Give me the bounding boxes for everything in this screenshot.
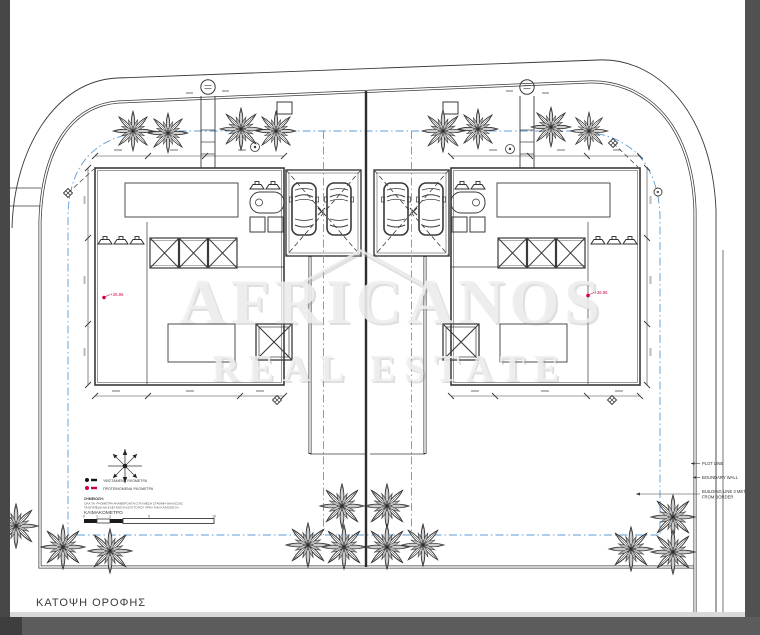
palm-tree bbox=[220, 108, 262, 150]
legend-marker-proposed bbox=[85, 486, 89, 490]
palm-tree bbox=[148, 113, 188, 153]
building-line-label-2: FROM BORDER bbox=[702, 494, 733, 499]
scalebar-tick-0: 0 bbox=[83, 515, 85, 519]
scalebar-title: ΚΛΙΜΑΚΟΜΕΤΡΟ bbox=[84, 510, 123, 516]
palm-tree bbox=[365, 525, 409, 569]
elevation-dot-left bbox=[102, 296, 106, 300]
palm-tree bbox=[286, 523, 330, 567]
legend-note-line2: ΤΑ ΕΠΙΠΕΔΑ ΝΑ ΕΛΕΓΧΘΟΥΝ ΕΠΙ ΤΟΠΟΥ ΠΡΙΝ Τ… bbox=[84, 505, 178, 509]
scalebar-tick-3: 5 bbox=[148, 515, 150, 519]
palm-tree bbox=[570, 112, 607, 149]
elevation-label-left: +26.95 bbox=[111, 292, 125, 297]
palm-tree bbox=[609, 527, 653, 571]
watermark-line1: AFRICANOS bbox=[179, 266, 604, 337]
legend-label-proposed: ΠΡΟΤΕΙΝΟΜΕΝΑ ΥΨΟΜΕΤΡΑ bbox=[103, 487, 154, 491]
palm-tree bbox=[256, 111, 296, 151]
site-plan-drawing: +26.95 +26.95 AFRICANOS AFRI bbox=[0, 0, 760, 635]
watermark: AFRICANOS AFRICANOS REAL ESTATE REAL EST… bbox=[179, 251, 606, 393]
palm-tree bbox=[322, 525, 366, 569]
scalebar-tick-2: 2 bbox=[109, 515, 111, 519]
scalebar-tick-1: 1 bbox=[96, 515, 98, 519]
palm-tree bbox=[651, 530, 695, 574]
palm-tree bbox=[320, 484, 364, 528]
watermark-line2: REAL ESTATE bbox=[212, 348, 568, 390]
compass-rose bbox=[108, 449, 142, 483]
legend-note-title: ΣΗΜΕΙΩΣΗ: bbox=[84, 497, 104, 501]
palm-tree bbox=[422, 110, 464, 152]
plot-line-label: PLOT LINE bbox=[702, 461, 724, 466]
legend-marker-existing bbox=[85, 478, 89, 482]
boundary-wall-label: BOUNDARY WALL bbox=[702, 475, 739, 480]
palm-tree bbox=[88, 529, 132, 573]
drawing-title: ΚΑΤΟΨΗ ΟΡΟΦΗΣ bbox=[36, 597, 146, 609]
legend-label-existing: ΥΦΙΣΤΑΜΕΝΑ ΥΨΟΜΕΤΡΑ bbox=[103, 479, 148, 483]
scalebar-tick-4: 10 bbox=[212, 515, 216, 519]
palm-tree bbox=[458, 109, 498, 149]
peg-circle-dot bbox=[657, 191, 659, 193]
palm-tree bbox=[365, 484, 409, 528]
palm-tree bbox=[531, 107, 571, 147]
palm-tree bbox=[41, 525, 85, 569]
palm-tree bbox=[113, 111, 153, 151]
palm-tree bbox=[402, 524, 444, 566]
